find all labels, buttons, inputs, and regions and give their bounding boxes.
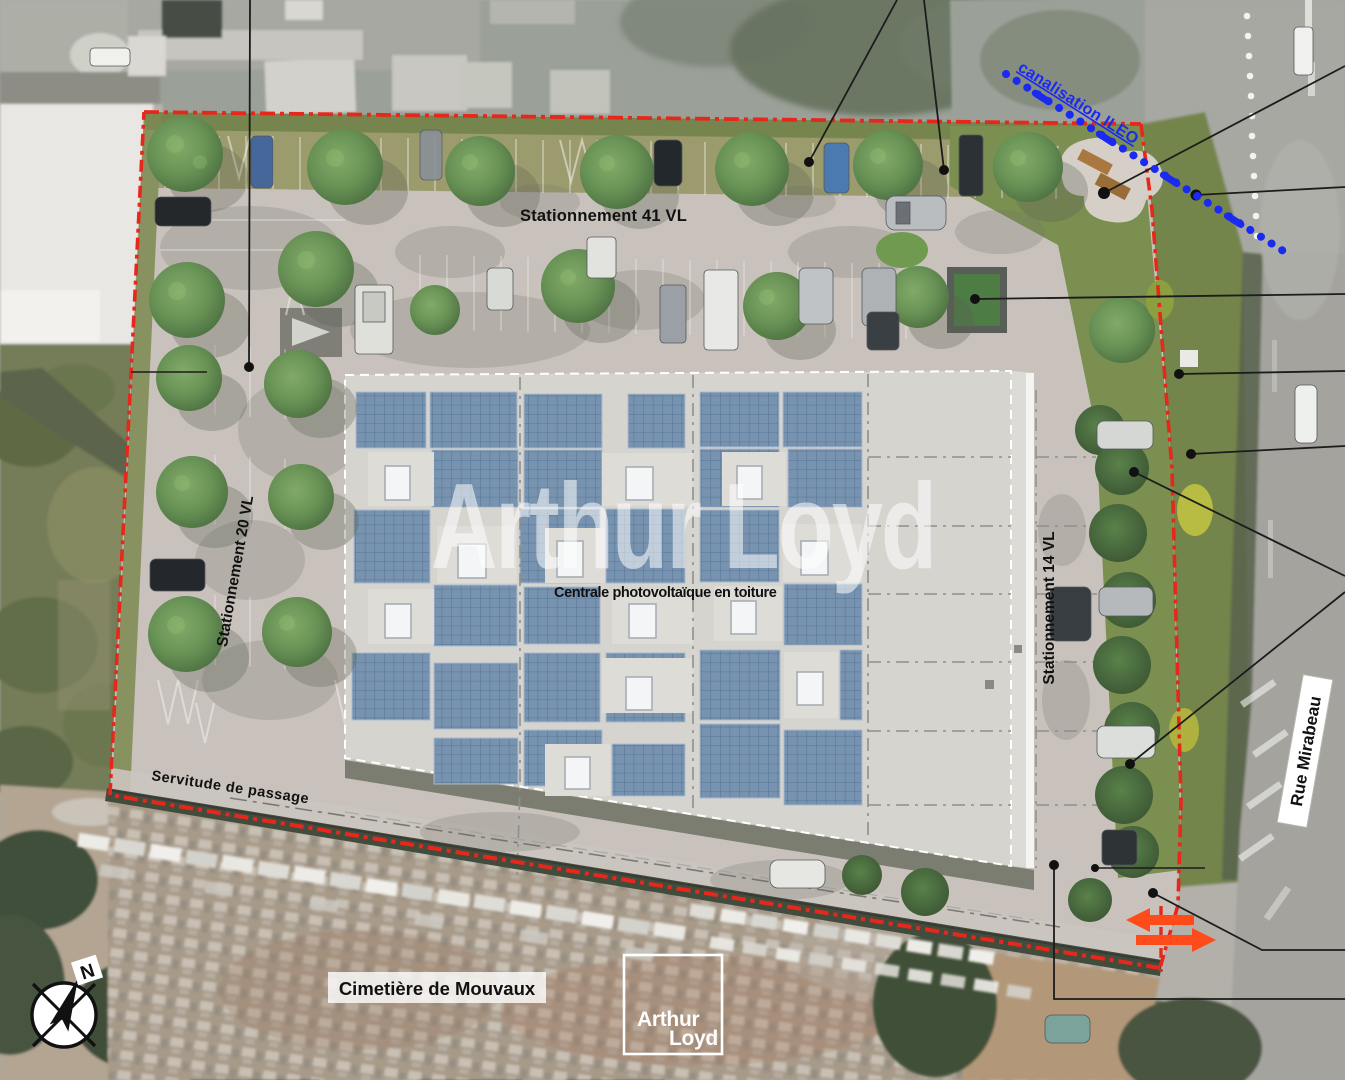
- svg-text:Arthur Loyd: Arthur Loyd: [431, 458, 935, 594]
- svg-text:Cimetière de Mouvaux: Cimetière de Mouvaux: [339, 978, 536, 999]
- svg-text:Stationnement 14 VL: Stationnement 14 VL: [1041, 531, 1058, 684]
- svg-text:Loyd: Loyd: [669, 1027, 718, 1050]
- svg-text:Stationnement 41 VL: Stationnement 41 VL: [520, 207, 687, 225]
